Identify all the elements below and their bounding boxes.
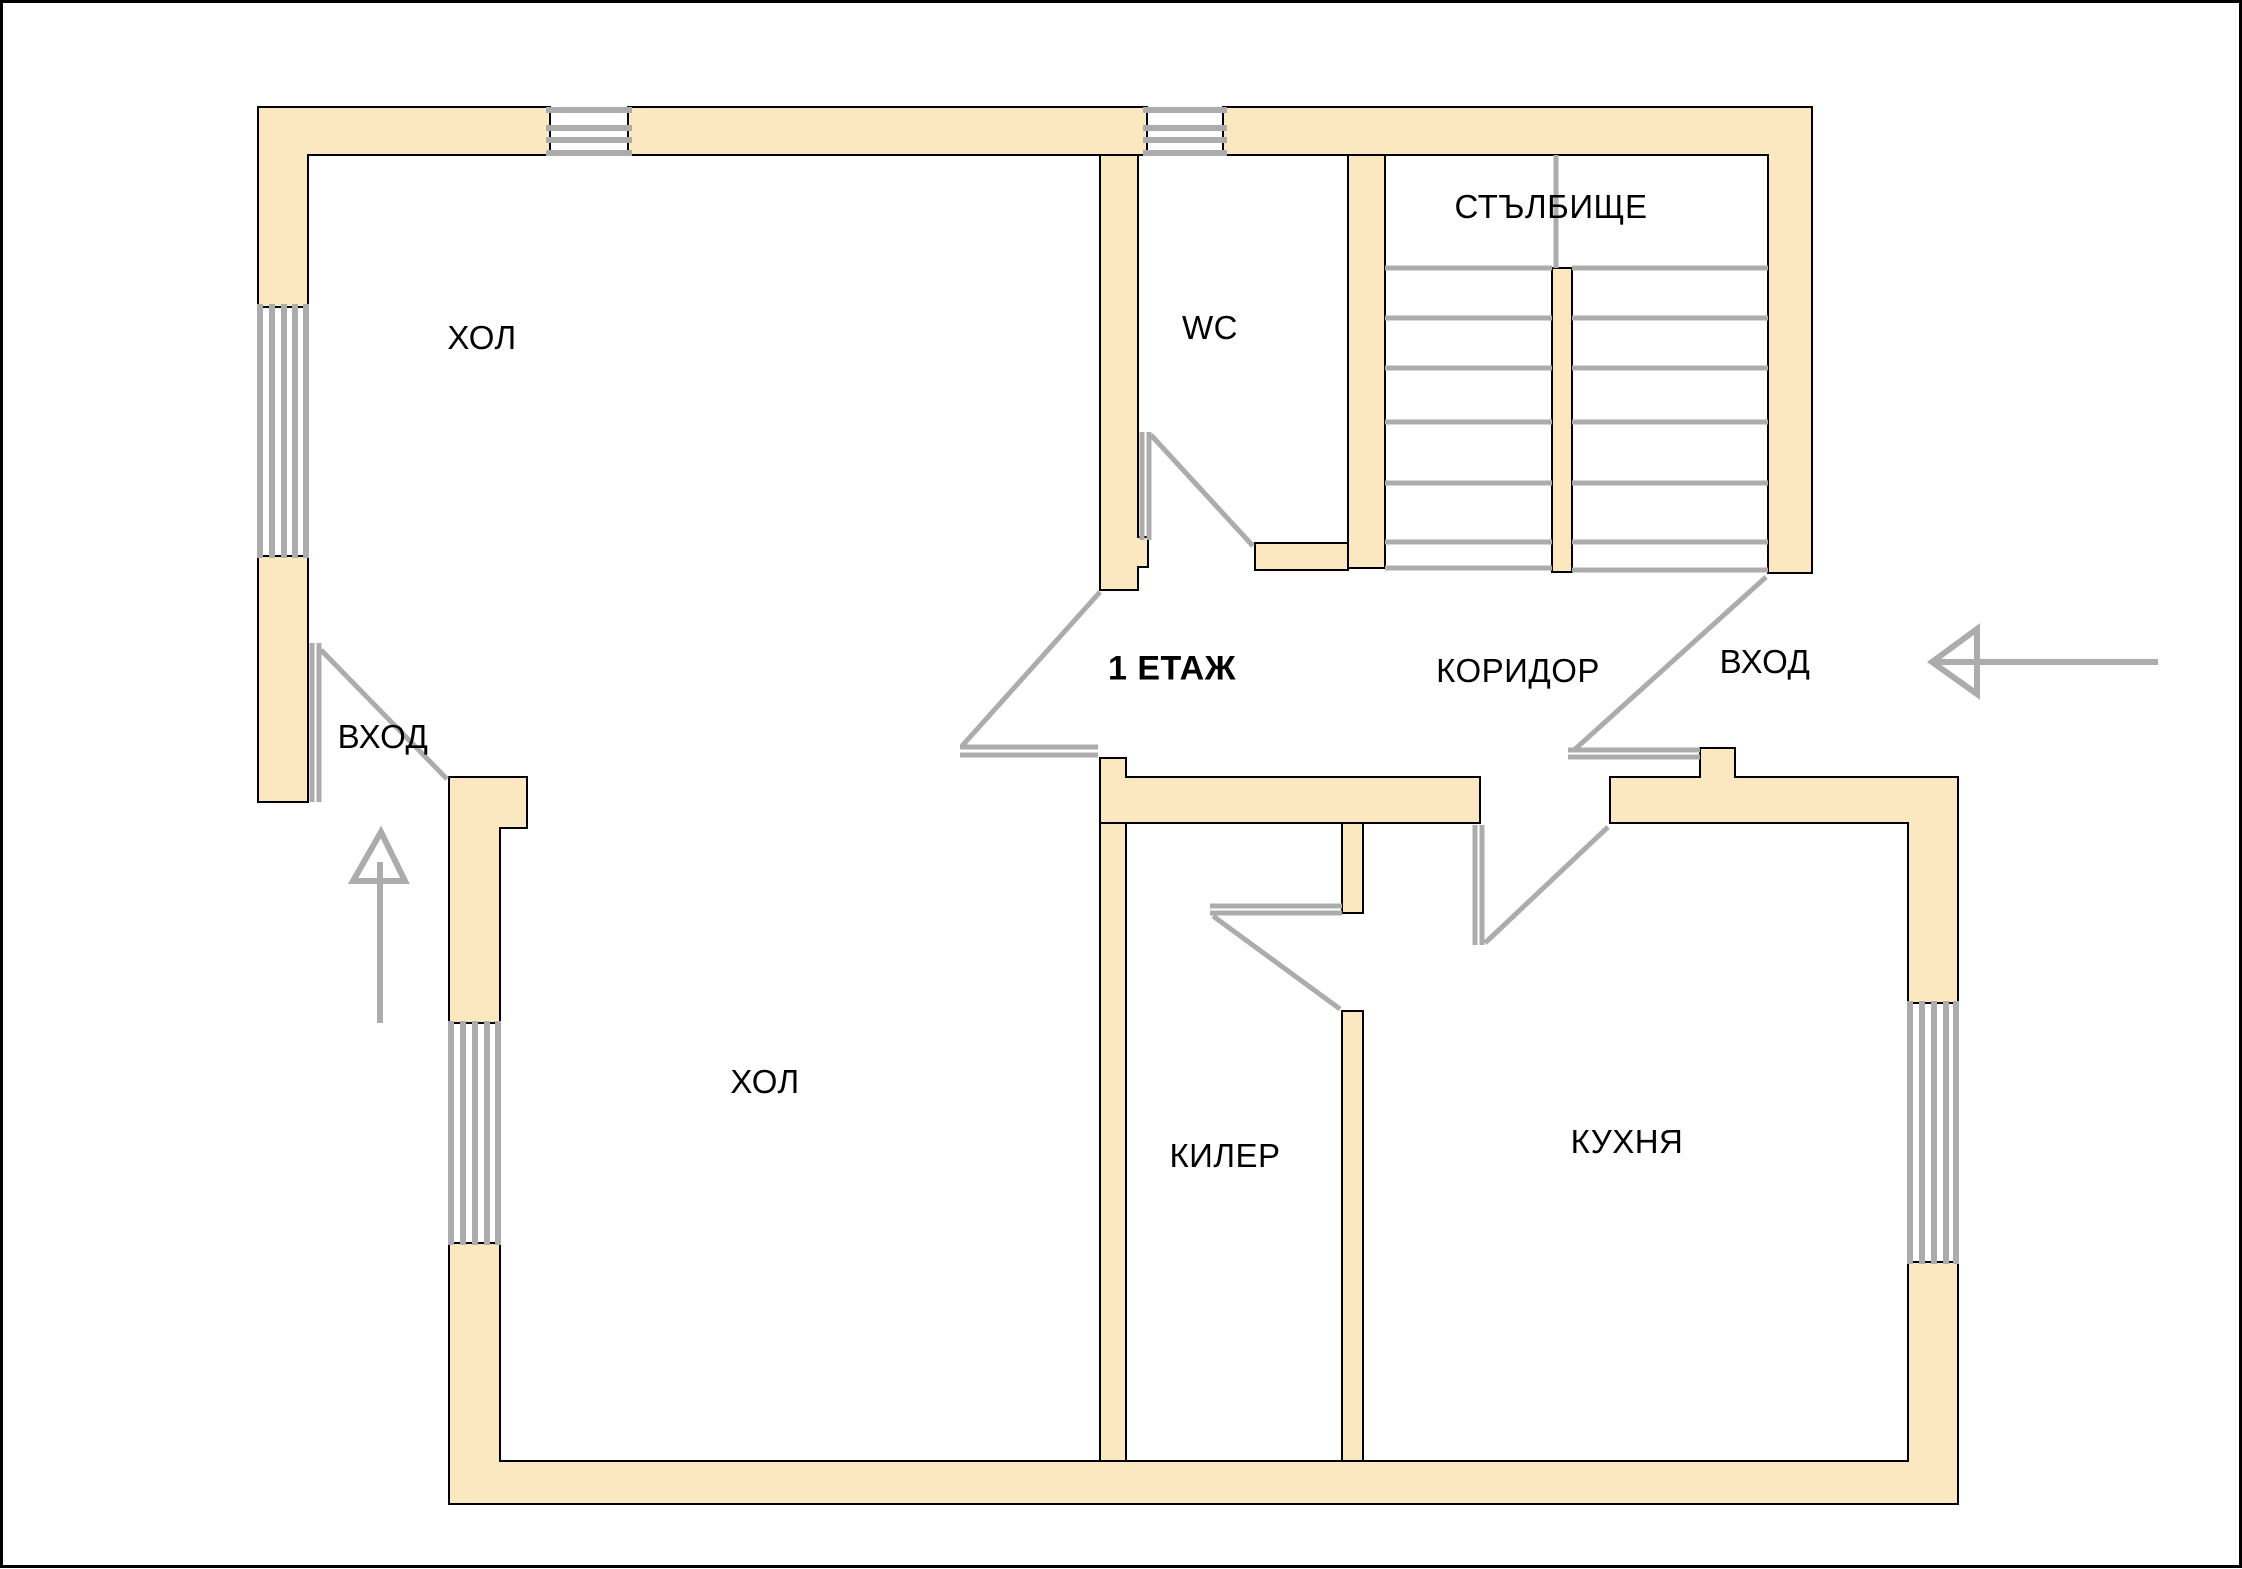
window-left-upper <box>260 304 306 558</box>
label-corridor: КОРИДОР <box>1436 652 1600 690</box>
wall-pantry-right-upper <box>1342 823 1363 913</box>
wall-stairwell-left <box>1348 155 1385 568</box>
floor-plan-canvas: ХОЛ WC СТЪЛБИЩЕ 1 ЕТАЖ КОРИДОР ВХОД ВХОД… <box>0 0 2242 1569</box>
doors <box>312 432 1766 1009</box>
wall-kitchen-top-right <box>1610 748 1958 1003</box>
wall-left-upper-lower-seg <box>258 556 308 802</box>
label-entrance-left: ВХОД <box>338 718 429 756</box>
label-entrance-right: ВХОД <box>1720 643 1811 681</box>
label-pantry: КИЛЕР <box>1169 1137 1280 1175</box>
door-kitchen <box>1475 825 1608 945</box>
wall-wc-bottom <box>1255 543 1348 570</box>
window-kitchen-right <box>1910 1001 1956 1264</box>
label-wc: WC <box>1182 309 1238 347</box>
entrance-arrow-up-icon <box>353 832 405 1023</box>
wall-bottom <box>449 1243 1958 1504</box>
wall-top-right <box>1223 107 1812 573</box>
wall-corridor-bottom <box>1100 758 1480 823</box>
label-kitchen: КУХНЯ <box>1571 1123 1684 1161</box>
window-left-lower <box>451 1021 498 1245</box>
wall-hall-lower-left-upper <box>449 777 527 1023</box>
stair-divider <box>1552 268 1572 572</box>
label-floor: 1 ЕТАЖ <box>1108 650 1236 689</box>
floor-plan-drawing <box>0 0 2242 1569</box>
label-staircase: СТЪЛБИЩЕ <box>1455 188 1648 226</box>
wall-top-left <box>258 107 550 307</box>
wall-pantry-left <box>1100 823 1126 1461</box>
wall-pantry-right-lower <box>1342 1011 1363 1461</box>
label-hall-lower: ХОЛ <box>730 1063 799 1101</box>
window-top-1 <box>546 110 632 153</box>
door-hall-upper <box>960 592 1100 755</box>
wall-top-middle <box>628 107 1147 155</box>
label-hall-upper: ХОЛ <box>447 319 516 357</box>
window-top-2 <box>1143 110 1227 153</box>
door-pantry <box>1210 906 1342 1009</box>
entrance-arrow-left-icon <box>1932 629 2158 694</box>
door-wc <box>1142 432 1253 546</box>
